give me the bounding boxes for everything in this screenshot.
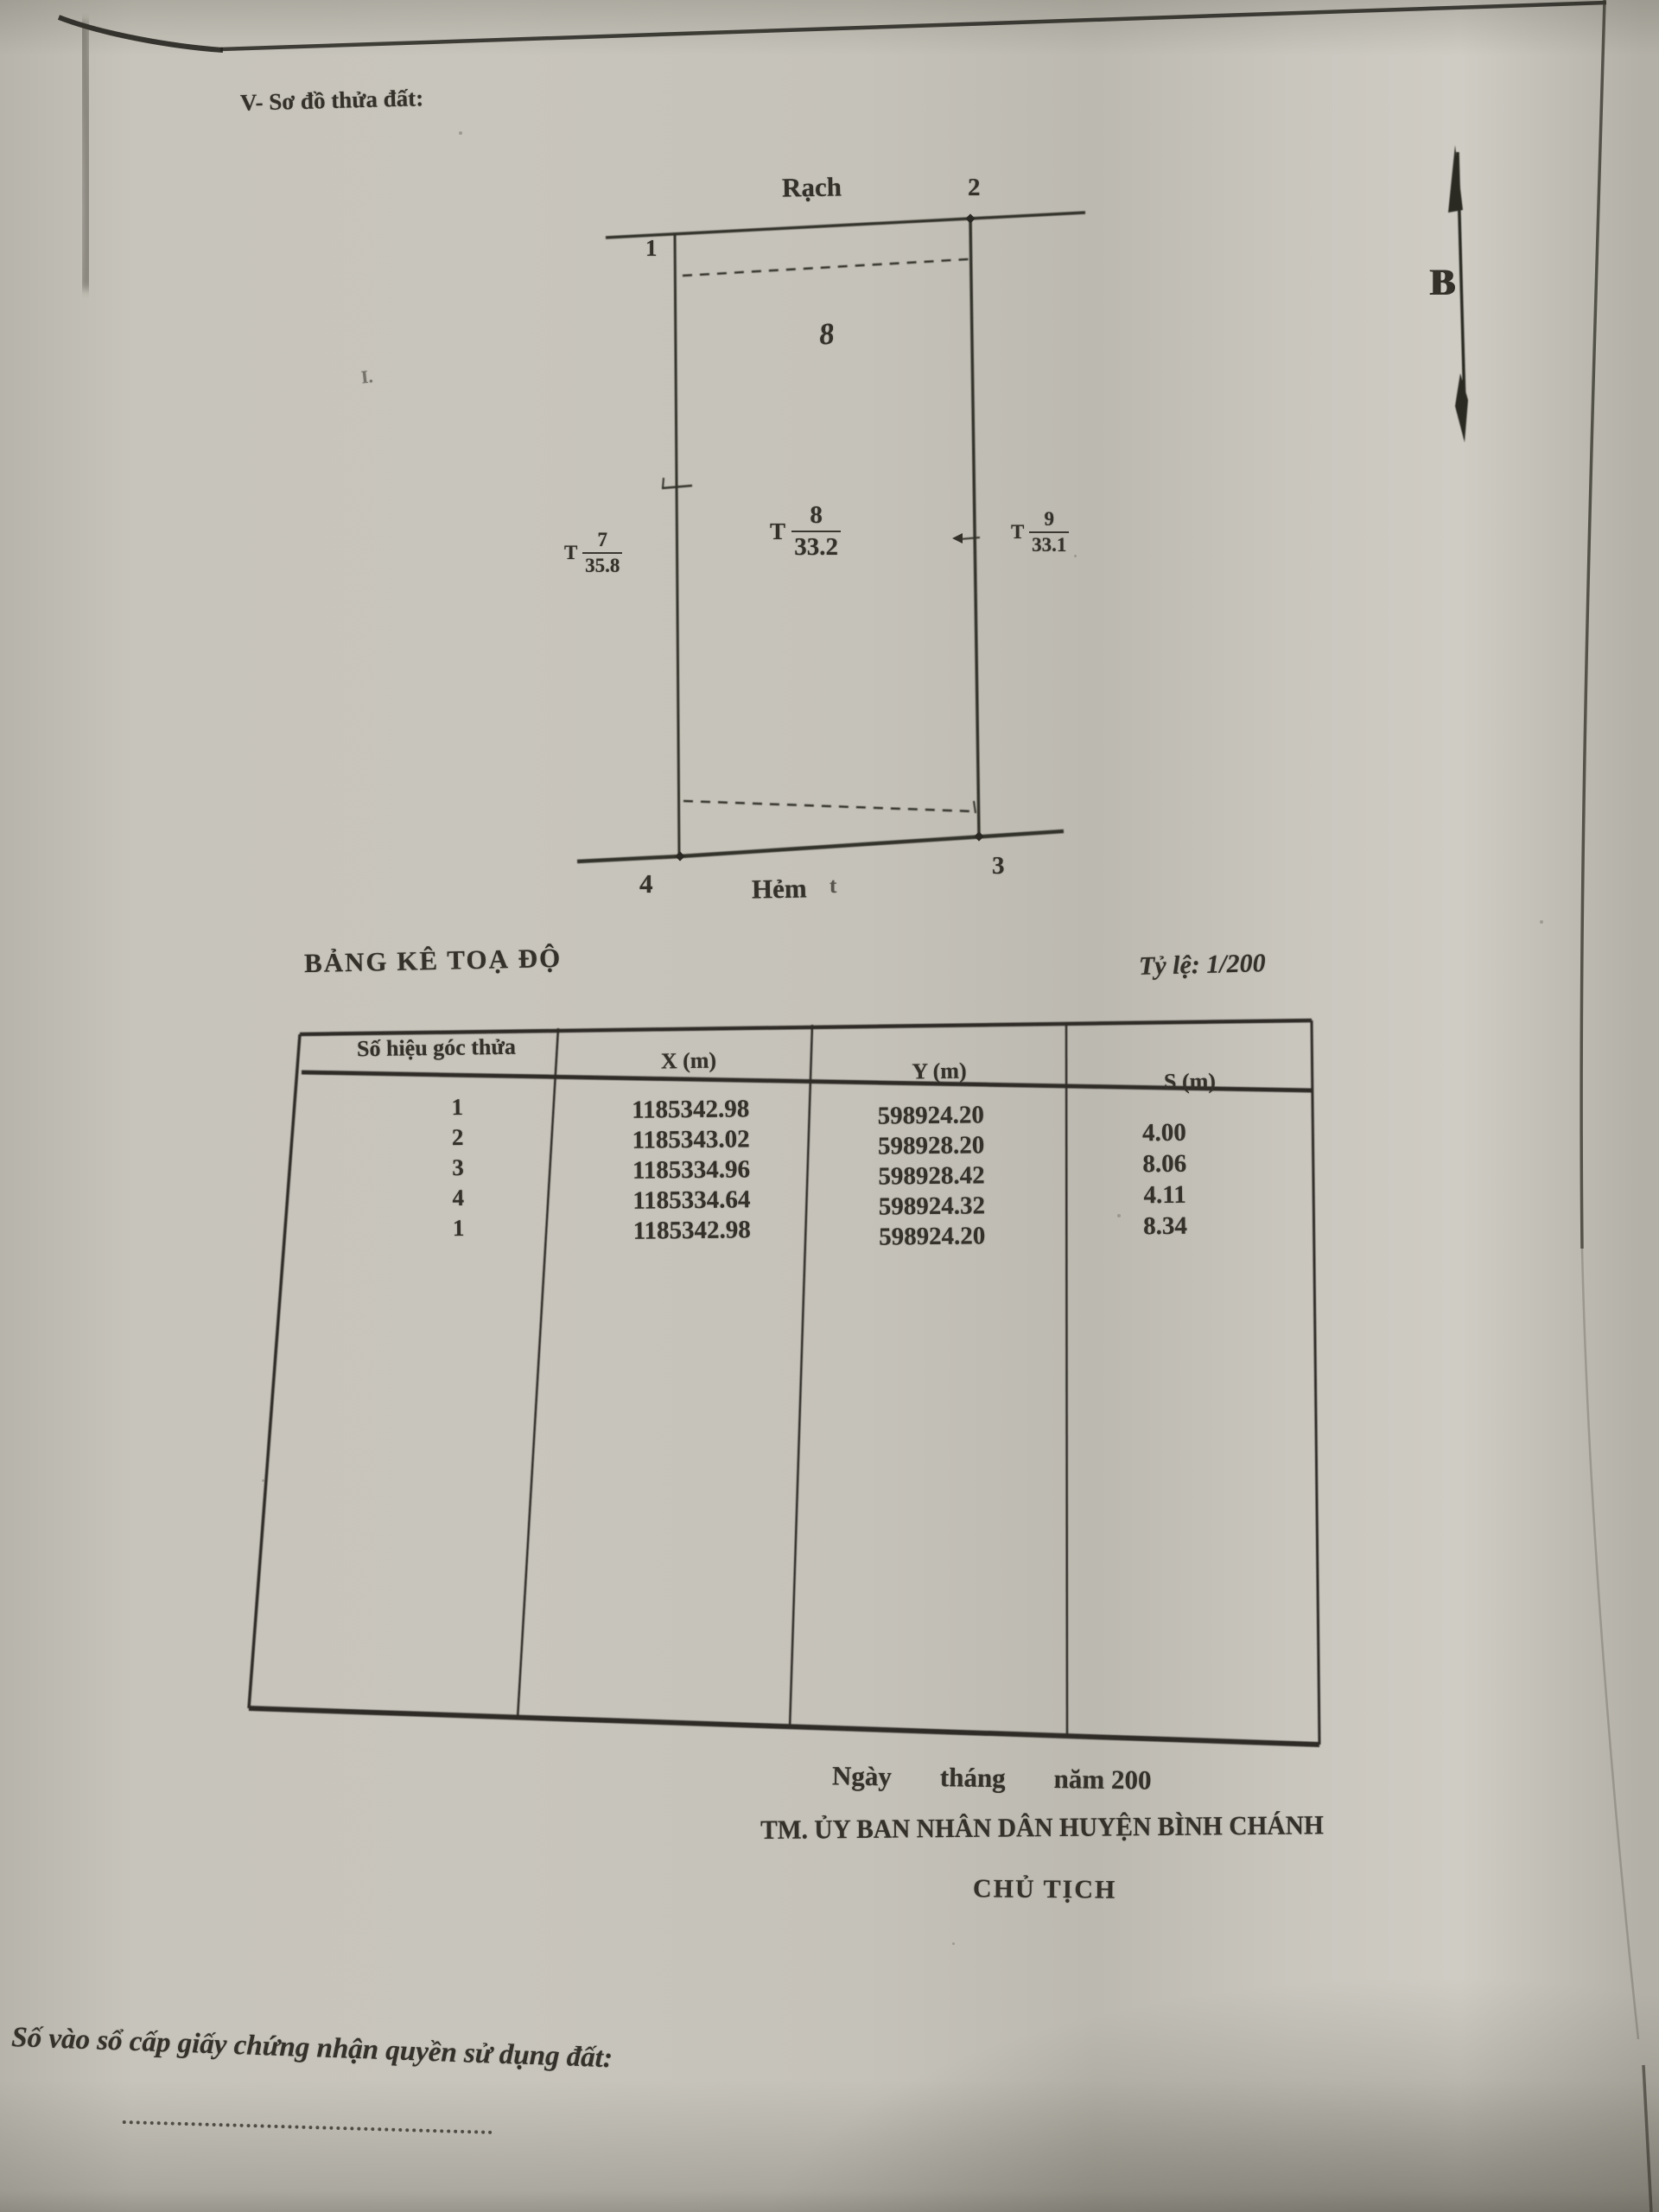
left-edge-tick-nub — [663, 478, 664, 488]
table-cell: 1185334.64 — [605, 1185, 778, 1217]
table-cell: 4.11 — [1123, 1180, 1206, 1212]
paper-speck — [1117, 1214, 1121, 1217]
table-column-s: 4.00 8.06 4.11 8.34 — [1122, 1119, 1207, 1244]
alley-boundary-line — [577, 831, 1064, 861]
table-cell: 4.00 — [1122, 1119, 1205, 1151]
page-fold-line-faint — [1582, 1249, 1638, 2039]
table-header-point: Số hiệu góc thửa — [324, 1033, 549, 1063]
center-parcel-mark: T 8 33.2 — [770, 501, 841, 563]
corner-2-dot — [965, 213, 975, 223]
parcel-fraction: 8 33.2 — [791, 501, 841, 563]
alley-label: Hẻm — [752, 873, 807, 905]
left-edge-tick — [662, 486, 692, 488]
parcel-fraction: 7 35.8 — [582, 529, 622, 578]
corner-4-label: 4 — [639, 868, 653, 899]
table-right-border — [1312, 1020, 1319, 1745]
table-header-x: X (m) — [645, 1047, 732, 1074]
corner-3-dot — [974, 831, 983, 841]
paper-speck — [1540, 920, 1543, 924]
table-cell: 598928.20 — [844, 1131, 1017, 1163]
adjacent-parcel-right-mark: T 9 33.1 — [1011, 508, 1069, 557]
table-cell: 3 — [436, 1154, 480, 1185]
t-prefix: T — [770, 518, 785, 544]
page-fold-line — [1581, 0, 1605, 1249]
section-title: V- Sơ đồ thửa đất: — [240, 85, 424, 117]
parcel-fraction: 9 33.1 — [1029, 508, 1069, 557]
authority-line: TM. ỦY BAN NHÂN DÂN HUYỆN BÌNH CHÁNH — [760, 1809, 1324, 1845]
table-divider-2 — [790, 1025, 812, 1729]
table-top-border — [300, 1020, 1312, 1034]
right-edge-arrow-line — [960, 537, 980, 539]
table-cell: 1 — [435, 1094, 479, 1125]
table-cell: 598924.20 — [846, 1222, 1019, 1254]
setback-dashed-bottom — [683, 801, 974, 811]
table-cell: 1185334.96 — [605, 1155, 778, 1187]
right-edge-arrowhead — [952, 533, 963, 543]
table-cell: 8.34 — [1123, 1211, 1206, 1243]
table-divider-1 — [518, 1028, 558, 1719]
date-word-day: Ngày — [832, 1760, 892, 1792]
table-divider-3 — [1066, 1022, 1067, 1736]
alley-stray-mark: t — [829, 874, 836, 899]
setback-dashed-top — [683, 259, 969, 276]
scan-top-edge-line — [220, 3, 1606, 49]
corner-2-label: 2 — [968, 174, 981, 202]
table-cell: 1185343.02 — [604, 1125, 777, 1157]
t-prefix: T — [564, 542, 577, 563]
corner-1-label: 1 — [645, 235, 658, 262]
table-cell: 1 — [437, 1215, 480, 1246]
scanned-land-certificate-page: V- Sơ đồ thửa đất: I. Rạch 2 1 8 4 3 Hẻm… — [0, 0, 1659, 2212]
canal-label: Rạch — [782, 171, 842, 203]
table-column-x: 1185342.98 1185343.02 1185334.96 1185334… — [604, 1095, 779, 1248]
table-cell: 598924.32 — [845, 1192, 1018, 1224]
corner-3-label: 3 — [992, 852, 1005, 880]
t-prefix: T — [1011, 521, 1024, 543]
scan-bottom-right-edge — [1643, 2065, 1651, 2212]
margin-stray-mark: I. — [360, 365, 374, 387]
table-cell: 2 — [435, 1124, 479, 1155]
paper-speck — [952, 1942, 955, 1945]
table-cell: 1185342.98 — [604, 1095, 777, 1127]
date-line: Ngày tháng năm 200 — [832, 1760, 1152, 1796]
date-word-month: tháng — [940, 1762, 1006, 1794]
parcel-right-edge — [970, 219, 979, 837]
table-bottom-border — [249, 1708, 1319, 1745]
scan-left-smudge — [83, 22, 88, 289]
north-symbol-letter: B — [1430, 262, 1455, 304]
table-column-y: 598924.20 598928.20 598928.42 598924.32 … — [844, 1101, 1019, 1254]
date-word-year: năm 200 — [1053, 1764, 1151, 1796]
table-title: BẢNG KÊ TOẠ ĐỘ — [304, 943, 563, 979]
table-cell: 1185342.98 — [606, 1216, 779, 1248]
parcel-left-edge — [675, 232, 679, 856]
table-header-y: Y (m) — [896, 1058, 982, 1084]
table-cell: 8.06 — [1123, 1149, 1206, 1181]
table-column-point-ids: 1 2 3 4 1 — [435, 1094, 480, 1246]
corner-4-dot — [675, 851, 684, 861]
canal-boundary-line — [606, 213, 1085, 238]
paper-speck — [459, 131, 462, 135]
table-header-s: S (m) — [1147, 1068, 1233, 1095]
parcel-number-handwritten: 8 — [817, 316, 836, 353]
table-cell: 598924.20 — [844, 1101, 1017, 1133]
paper-speck — [262, 1479, 264, 1482]
table-cell: 4 — [436, 1185, 480, 1216]
scale-label: Tỷ lệ: 1/200 — [1139, 949, 1266, 982]
table-left-border — [249, 1034, 300, 1708]
adjacent-parcel-left-mark: T 7 35.8 — [564, 529, 622, 578]
paper-speck — [1074, 555, 1077, 557]
table-cell: 598928.42 — [845, 1161, 1018, 1193]
dashed-end-tick — [974, 801, 976, 813]
signer-title: CHỦ TỊCH — [973, 1874, 1117, 1905]
